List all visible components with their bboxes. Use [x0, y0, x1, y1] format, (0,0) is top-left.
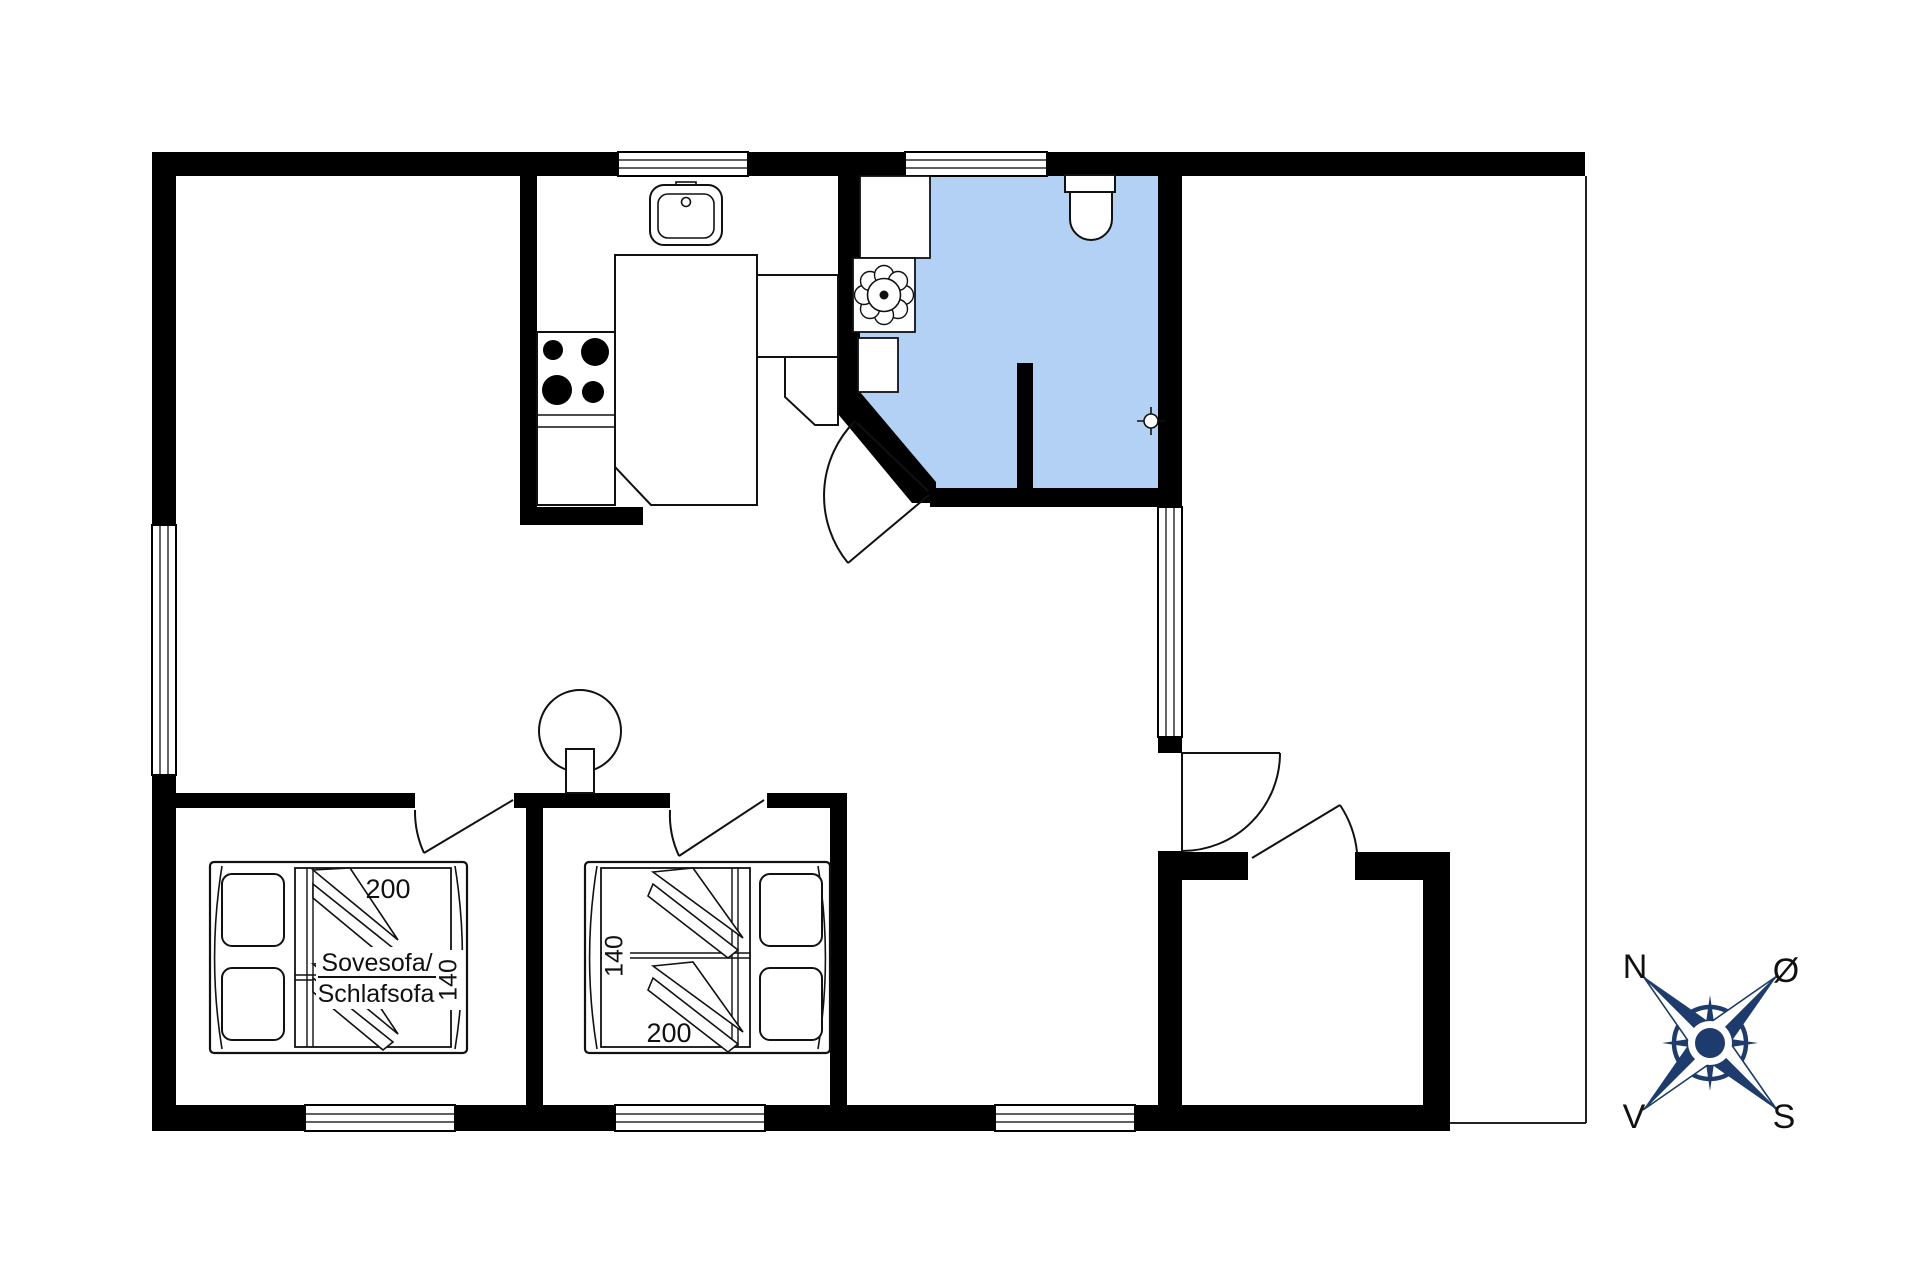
burner: [582, 381, 604, 403]
bed1-sofa-label-line1: Sovesofa/: [321, 949, 432, 977]
wall-bathroom-bottom: [930, 488, 1182, 507]
door-arc: [1182, 753, 1280, 851]
wall-kitchen-stub: [520, 507, 643, 525]
burner: [543, 340, 563, 360]
drain-circle: [1144, 414, 1158, 428]
compass-rose: N Ø V S: [1623, 948, 1800, 1136]
floor-plan-page: 200 Sovesofa/ Schlafsofa 140 140 200: [0, 0, 1920, 1279]
toilet: [1065, 175, 1115, 240]
door-arc: [824, 421, 855, 563]
bathroom-cabinet-small: [858, 338, 898, 392]
wall-bedroom1-top: [176, 793, 415, 808]
hand-basin-drain: [880, 291, 889, 300]
window-left-living: [152, 525, 176, 775]
compass-label-west: V: [1623, 1098, 1646, 1136]
burner: [581, 338, 609, 366]
lamp-base: [566, 749, 594, 793]
door-annex: [1252, 805, 1357, 858]
window-bottom-living: [995, 1105, 1135, 1131]
window-frame: [618, 152, 748, 176]
bed2-length-label: 200: [646, 1018, 691, 1048]
window-frame: [1158, 507, 1182, 737]
window-bottom-bedroom2: [615, 1105, 765, 1131]
compass-label-south: S: [1773, 1098, 1796, 1136]
toilet-tank: [1065, 175, 1115, 192]
compass-label-east: Ø: [1773, 952, 1799, 990]
kitchen-counter-right: [757, 275, 838, 357]
wall-bedroom2-left: [526, 808, 543, 1105]
wall-bedroom2-right: [830, 808, 847, 1105]
window-east-living: [1158, 507, 1182, 737]
door-bedroom2: [670, 800, 764, 856]
toilet-bowl: [1070, 192, 1112, 240]
kitchen-counter-right-lower: [785, 357, 838, 425]
wall-kitchen-left: [520, 176, 537, 525]
compass-center-group: [1695, 1028, 1725, 1058]
kitchen-sink: [650, 182, 722, 245]
door-leaf: [424, 800, 513, 853]
window-frame: [152, 525, 176, 775]
window-bottom-bedroom1: [305, 1105, 455, 1131]
wall-shower-partition: [1017, 363, 1033, 503]
wall-annex-right: [1423, 852, 1450, 1131]
window-frame: [615, 1105, 765, 1131]
wall-annex-top-left: [1158, 852, 1248, 880]
pillow: [222, 874, 284, 946]
wall-east-block: [1158, 737, 1182, 753]
floor-lamp: [539, 690, 621, 793]
bed1-width-label: 140: [435, 959, 463, 1001]
pillow: [760, 968, 822, 1040]
kitchen-island: [615, 255, 757, 505]
terrace-outline: [1450, 176, 1586, 1123]
door-leaf: [1252, 805, 1340, 858]
pillow: [760, 874, 822, 946]
door-arc: [670, 810, 679, 856]
wall-bedroom2-top-right: [767, 793, 847, 808]
window-frame: [305, 1105, 455, 1131]
wall-east-lower: [1158, 851, 1182, 1105]
window-top-kitchen: [618, 152, 748, 176]
door-terrace-entrance: [1182, 753, 1280, 851]
kitchen: [537, 182, 838, 505]
bed1-sofa-label-line2: Schlafsofa: [318, 980, 435, 1008]
door-bedroom1: [415, 800, 513, 853]
compass-label-north: N: [1623, 948, 1648, 986]
bed1-length-label: 200: [365, 874, 410, 904]
door-arc: [415, 810, 424, 853]
window-frame: [905, 152, 1047, 176]
burner: [542, 375, 572, 405]
stove: [537, 332, 615, 505]
wall-outer-top: [152, 152, 1585, 176]
wall-bedrooms-mid: [514, 793, 670, 808]
door-arc: [1340, 805, 1357, 852]
floor-plan-svg: 200 Sovesofa/ Schlafsofa 140 140 200: [0, 0, 1920, 1279]
window-frame: [995, 1105, 1135, 1131]
pillow: [222, 968, 284, 1040]
compass-center-dot: [1695, 1028, 1725, 1058]
door-leaf: [848, 495, 929, 563]
sink-drain: [682, 198, 691, 207]
window-top-bathroom: [905, 152, 1047, 176]
hand-basin: [853, 258, 915, 332]
bed2-width-label: 140: [601, 935, 629, 977]
vanity-cabinet: [860, 176, 930, 258]
door-leaf: [679, 800, 764, 856]
wall-bathroom-right: [1158, 176, 1182, 488]
